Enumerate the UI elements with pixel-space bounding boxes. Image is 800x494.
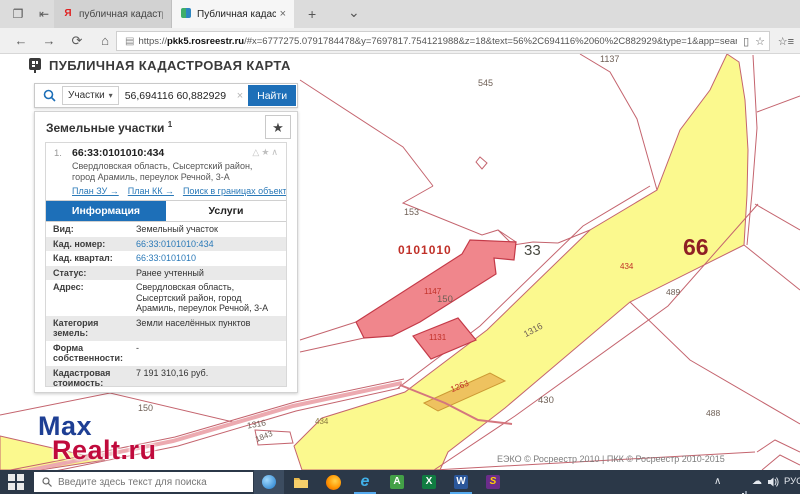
parcel-label: 488 <box>706 408 720 418</box>
set-tabs-aside-icon[interactable]: ⇤ <box>36 7 52 21</box>
green-a-app-icon[interactable]: A <box>382 470 412 494</box>
panel-title: Земельные участки 1 <box>46 120 172 135</box>
parcel-label: 434 <box>315 417 328 426</box>
search-input[interactable] <box>125 90 237 102</box>
parcel-label: 150 <box>138 403 153 413</box>
new-tab-button[interactable]: + <box>308 6 316 22</box>
map-search-bar: Участки ▾ × Найти <box>34 83 298 108</box>
parcel-label: 430 <box>538 395 554 406</box>
purple-lightning-app-icon[interactable]: S <box>478 470 508 494</box>
table-row: Кад. квартал:66:33:0101010 <box>46 251 286 266</box>
parcel-info-table: Вид:Земельный участок Кад. номер:66:33:0… <box>46 222 286 387</box>
tab-close-icon[interactable]: × <box>280 8 286 20</box>
yandex-favicon: Я <box>62 8 74 20</box>
search-icon <box>42 477 52 487</box>
card-control-icons[interactable]: △★∧ <box>252 147 280 158</box>
word-icon[interactable]: W <box>446 470 476 494</box>
start-button[interactable] <box>8 474 25 490</box>
cadastral-number[interactable]: 66:33:0101010:434 <box>72 147 280 159</box>
tab-information[interactable]: Информация <box>46 201 166 221</box>
favorite-star-icon[interactable]: ☆ <box>755 35 765 48</box>
table-row: Кадастровая стоимость:7 191 310,16 руб. <box>46 366 286 388</box>
search-icon <box>43 89 56 102</box>
volume-icon[interactable] <box>768 470 780 494</box>
firefox-icon[interactable] <box>318 470 348 494</box>
tab-preview-icon[interactable]: ❐ <box>10 7 26 21</box>
cortana-icon[interactable] <box>254 470 284 494</box>
table-row: Кад. номер:66:33:0101010:434 <box>46 237 286 252</box>
parcel-label: 153 <box>404 207 419 217</box>
file-explorer-icon[interactable] <box>286 470 316 494</box>
parcel-label: 489 <box>666 287 680 297</box>
tab-services[interactable]: Услуги <box>166 201 286 221</box>
result-index: 1. <box>54 148 62 159</box>
favorites-star-button[interactable]: ★ <box>265 115 291 139</box>
taskbar-search-box[interactable] <box>34 472 253 492</box>
browser-tab-pkk-active[interactable]: Публичная кадастрова × <box>172 0 294 28</box>
browser-tab-bar: ❐ ⇤ Я публичная кадастровая ка Публичная… <box>0 0 800 28</box>
maxrealt-watermark: Max Realt.ru <box>38 414 157 462</box>
table-row: Адрес:Свердловская область, Сысертский р… <box>46 280 286 316</box>
search-category-dropdown[interactable]: Участки ▾ <box>62 86 119 105</box>
browser-address-bar: ← → ⟳ ⌂ ▤ https://pkk5.rosreestr.ru/#x=6… <box>0 28 800 54</box>
pkk-logo-icon <box>28 58 42 73</box>
page-content: 1137 545 153 0101010 33 66 434 489 1147 … <box>0 54 800 470</box>
site-title: ПУБЛИЧНАЯ КАДАСТРОВАЯ КАРТА <box>49 58 291 73</box>
favorites-hub-icon[interactable]: ☆≡ <box>778 35 794 48</box>
pkk-favicon <box>180 8 192 20</box>
search-in-bounds-link[interactable]: Поиск в границах объекта → <box>183 186 287 196</box>
district-label: 66 <box>683 234 709 261</box>
excel-icon[interactable]: X <box>414 470 444 494</box>
parcel-label: 545 <box>478 78 493 88</box>
clear-search-icon[interactable]: × <box>237 90 243 102</box>
table-row: Вид:Земельный участок <box>46 222 286 237</box>
table-row: Категория земель:Земли населённых пункто… <box>46 316 286 341</box>
back-button[interactable]: ← <box>12 32 30 50</box>
quarter-label: 0101010 <box>398 243 452 257</box>
tab-list-chevron-icon[interactable]: ⌄ <box>348 4 360 21</box>
screen: ❐ ⇤ Я публичная кадастровая ка Публичная… <box>0 0 800 494</box>
network-icon[interactable] <box>736 477 748 494</box>
building-label: 1131 <box>429 333 446 342</box>
tray-chevron-icon[interactable]: ∧ <box>714 470 721 494</box>
refresh-button[interactable]: ⟳ <box>68 32 86 50</box>
reading-list-icon[interactable]: ▯ <box>743 35 749 48</box>
parcel-label: 434 <box>620 262 633 271</box>
windows-taskbar: e A X W S ∧ ☁ РУС <box>0 470 800 494</box>
table-row: Форма собственности:- <box>46 341 286 366</box>
parcel-label: 150 <box>437 294 453 305</box>
url-text: https://pkk5.rosreestr.ru/#x=6777275.079… <box>138 36 737 47</box>
parcel-address: Свердловская область, Сысертский район, … <box>72 161 272 182</box>
page-icon: ▤ <box>125 36 134 47</box>
table-row: Статус:Ранее учтенный <box>46 266 286 281</box>
quarter-label: 33 <box>524 242 541 259</box>
language-indicator[interactable]: РУС <box>784 470 800 494</box>
url-field[interactable]: ▤ https://pkk5.rosreestr.ru/#x=6777275.0… <box>116 31 770 51</box>
site-header: ПУБЛИЧНАЯ КАДАСТРОВАЯ КАРТА <box>28 58 291 73</box>
plan-kk-link[interactable]: План КК → <box>128 186 174 196</box>
browser-tab-yandex[interactable]: Я публичная кадастровая ка <box>54 0 172 28</box>
chevron-down-icon: ▾ <box>109 91 113 100</box>
results-panel: Земельные участки 1 ★ 1. 66:33:0101010:4… <box>34 111 298 393</box>
parcel-label: 1137 <box>600 54 619 64</box>
tab-label: публичная кадастровая ка <box>79 9 163 20</box>
watermark-line2: Realt.ru <box>52 438 157 462</box>
taskbar-search-input[interactable] <box>58 477 238 488</box>
parcel-card: 1. 66:33:0101010:434 △★∧ Свердловская об… <box>45 142 287 387</box>
plan-zu-link[interactable]: План ЗУ → <box>72 186 119 196</box>
forward-button[interactable]: → <box>40 32 58 50</box>
search-category-value: Участки <box>68 90 105 101</box>
onedrive-cloud-icon[interactable]: ☁ <box>752 470 762 494</box>
find-button[interactable]: Найти <box>248 85 296 106</box>
home-button[interactable]: ⌂ <box>96 32 114 50</box>
edge-icon[interactable]: e <box>350 470 380 494</box>
tab-label: Публичная кадастрова <box>197 9 276 20</box>
map-attribution: ЕЭКО © Росреестр 2010 | ПКК © Росреестр … <box>497 454 725 464</box>
